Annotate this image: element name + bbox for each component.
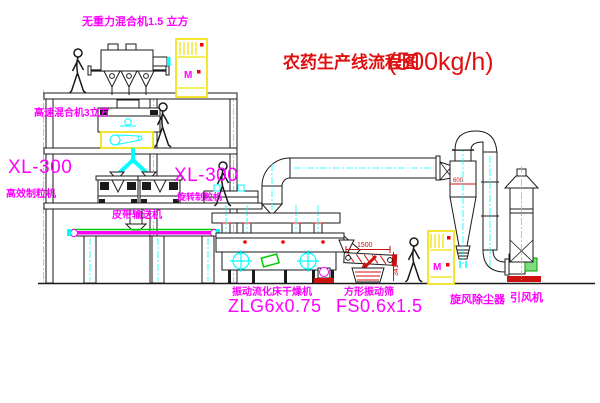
pesticide-line-flow-drawing: M: [0, 0, 600, 403]
label-belt-conveyor: 皮带输送机: [111, 208, 162, 221]
label-granulator-left-model: XL-300: [8, 157, 72, 178]
dim-1500: 1500: [357, 242, 373, 249]
control-cabinet-bottom: M: [428, 231, 454, 284]
motor-symbol: M: [433, 262, 441, 273]
control-cabinet-top: M: [176, 39, 207, 97]
label-gravity-mixer: 无重力混合机1.5 立方: [81, 14, 188, 28]
label-granulator-right-model: XL-300: [174, 165, 238, 186]
pipe-cap-cyan: [167, 57, 171, 66]
drawing-title: 农药生产线流程图 (500kg/h): [282, 48, 494, 76]
label-fan: 引风机: [510, 290, 543, 304]
dim-341: 341: [393, 264, 400, 276]
floor-slab-top: [44, 93, 237, 99]
label-dryer-model: ZLG6x0.75: [228, 296, 322, 316]
granulator-left-machine: [96, 176, 140, 203]
label-high-speed-mixer: 高速混合机3立方: [34, 106, 110, 119]
label-granulator-left-name: 高效制粒机: [6, 187, 56, 200]
worker-figure: [406, 238, 423, 282]
label-granulator-right-name: 旋转制粒机: [176, 191, 222, 202]
exhaust-duct: [262, 156, 452, 213]
vibrating-screen-machine: 1500 341: [339, 240, 400, 282]
gravity-mixer-machine: [88, 44, 171, 95]
floor-slab-mid: [44, 148, 237, 154]
indicator-dot: [200, 43, 204, 47]
motor-symbol: M: [184, 70, 192, 81]
cad-flow-diagram: M: [0, 0, 600, 403]
dim-600: 600: [453, 178, 464, 184]
roller-cap: [67, 229, 71, 236]
indicator-dot: [446, 263, 450, 267]
belt: [72, 231, 216, 235]
belt-conveyor-machine: [67, 229, 220, 283]
fan-inlet-elbow: [483, 250, 505, 272]
label-cyclone: 旋风除尘器: [449, 292, 506, 306]
label-screen-model: FS0.6x1.5: [336, 296, 423, 316]
worker-figure: [70, 49, 87, 93]
indicator-dot: [447, 236, 451, 240]
indicator-dot: [197, 70, 201, 74]
title-capacity: (500kg/h): [388, 48, 494, 76]
